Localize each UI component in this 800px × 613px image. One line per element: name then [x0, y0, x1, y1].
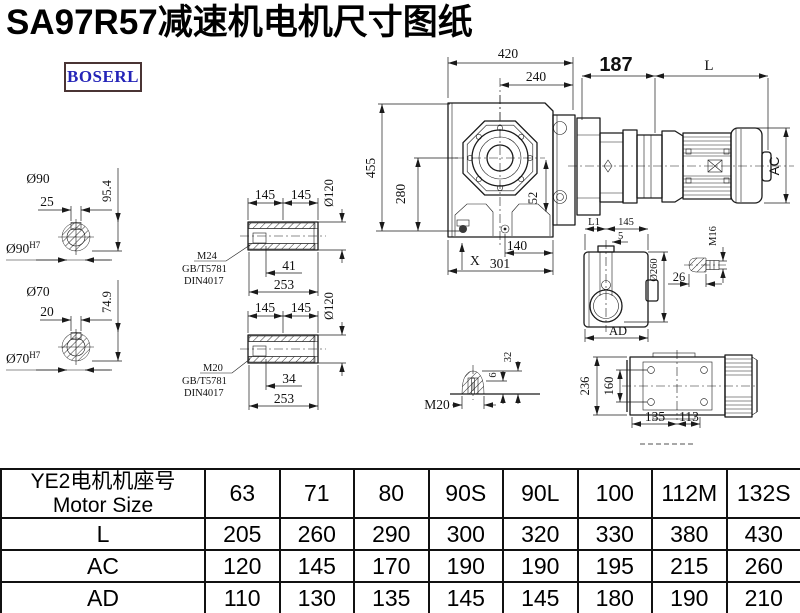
dim-145-c: 145 — [255, 300, 276, 315]
motor-end-cap — [731, 128, 762, 203]
dim-52: 52 — [526, 192, 540, 205]
dim-dia-260: Ø260 — [649, 258, 660, 281]
dim-187: 187 — [599, 54, 632, 76]
dim-34: 34 — [282, 371, 296, 386]
dim-455: 455 — [363, 158, 378, 179]
table-col-header: 90L — [503, 469, 578, 518]
table-cell: 120 — [205, 550, 280, 582]
label-m16: M16 — [708, 226, 719, 246]
table-cell: 195 — [578, 550, 653, 582]
dim-ad: AD — [609, 324, 627, 338]
dim-253-b: 253 — [274, 391, 295, 406]
table-cell: 260 — [727, 550, 800, 582]
page-title: SA97R57减速机电机尺寸图纸 — [6, 0, 473, 45]
adapter-disc — [623, 130, 637, 203]
table-col-header: 90S — [429, 469, 504, 518]
table-col-header: 80 — [354, 469, 429, 518]
dim-160: 160 — [602, 377, 616, 396]
plug-m16: M16 26 — [668, 226, 727, 287]
label-din-b: DIN4017 — [184, 388, 224, 399]
dim-145-a: 145 — [255, 187, 276, 202]
dim-280: 280 — [393, 184, 408, 205]
dim-dia-120-b: Ø120 — [322, 292, 336, 320]
dim-74-9: 74.9 — [100, 291, 114, 313]
dim-41: 41 — [282, 258, 296, 273]
plug-m20-view: M20 6 32 — [424, 352, 540, 412]
gearbox-side-view: L1 145 5 Ø260 AD — [584, 217, 668, 342]
coupling-neck — [600, 133, 623, 202]
dim-l: L — [704, 58, 713, 74]
table-cell: 135 — [354, 582, 429, 613]
table-cell: 190 — [429, 550, 504, 582]
label-m20: M20 — [203, 363, 223, 374]
table-cell: 430 — [727, 518, 800, 550]
sleeve-m20: 145 145 Ø120 M20 GB/T5781 DIN4017 34 253 — [182, 292, 346, 410]
label-gb-b: GB/T5781 — [182, 376, 227, 387]
table-header-en: Motor Size — [2, 494, 204, 518]
motor-assembly-view: 187 L AC — [568, 54, 794, 215]
dim-bore-70: Ø70H7 — [6, 350, 41, 366]
table-header-cn: YE2电机机座号 — [2, 470, 204, 494]
dim-113: 113 — [679, 409, 699, 424]
gearbox-front-view: 420 240 455 280 52 140 301 X — [363, 46, 575, 275]
table-cell: 190 — [652, 582, 727, 613]
dim-145-side: 145 — [618, 217, 634, 228]
dim-140: 140 — [507, 238, 528, 253]
table-col-header: 100 — [578, 469, 653, 518]
dim-145-b: 145 — [291, 187, 312, 202]
dim-bore-90: Ø90H7 — [6, 240, 41, 256]
dim-dia-120-a: Ø120 — [322, 179, 336, 207]
dim-135: 135 — [645, 409, 666, 424]
table-cell: 170 — [354, 550, 429, 582]
dim-6: 6 — [488, 372, 499, 377]
sleeve-m24: 145 145 Ø120 M24 GB/T5781 DIN4017 41 253 — [182, 179, 346, 296]
table-cell: 205 — [205, 518, 280, 550]
gearbox-top-view: 236 160 135 113 — [578, 350, 758, 444]
table-row: L 205 260 290 300 320 330 380 430 — [1, 518, 800, 550]
table-cell: 145 — [280, 550, 355, 582]
label-m20-plug: M20 — [424, 397, 450, 412]
dim-301: 301 — [490, 256, 510, 271]
dim-145-d: 145 — [291, 300, 312, 315]
table-cell: 320 — [503, 518, 578, 550]
row-label: AD — [1, 582, 205, 613]
table-cell: 180 — [578, 582, 653, 613]
table-cell: 290 — [354, 518, 429, 550]
row-label: AC — [1, 550, 205, 582]
mark-x: X — [470, 253, 480, 268]
table-cell: 145 — [503, 582, 578, 613]
label-m24: M24 — [197, 251, 218, 262]
dim-keyway-25: 25 — [40, 194, 54, 209]
input-flange-plate — [553, 115, 575, 225]
dim-dia-90: Ø90 — [26, 171, 49, 186]
oil-plug — [459, 225, 467, 233]
table-cell: 145 — [429, 582, 504, 613]
dim-5: 5 — [618, 231, 623, 242]
label-din-a: DIN4017 — [184, 276, 224, 287]
table-cell: 330 — [578, 518, 653, 550]
drawing-page: { "title": "SA97R57减速机电机尺寸图纸", "brand": … — [0, 0, 800, 613]
shaft-section-70: Ø70 20 74.9 Ø70H7 — [6, 280, 122, 370]
table-row: AD 110 130 135 145 145 180 190 210 — [1, 582, 800, 613]
table-col-header: 132S — [727, 469, 800, 518]
dim-dia-70: Ø70 — [26, 284, 49, 299]
table-cell: 380 — [652, 518, 727, 550]
shaft-section-90: Ø90 25 95.4 Ø90H7 — [6, 168, 122, 260]
table-header-cell: YE2电机机座号 Motor Size — [1, 469, 205, 518]
motor-flange-bell — [662, 131, 683, 202]
table-row: AC 120 145 170 190 190 195 215 260 — [1, 550, 800, 582]
table-cell: 110 — [205, 582, 280, 613]
table-cell: 300 — [429, 518, 504, 550]
table-col-header: 71 — [280, 469, 355, 518]
dim-240: 240 — [526, 69, 547, 84]
label-gb-a: GB/T5781 — [182, 264, 227, 275]
table-cell: 130 — [280, 582, 355, 613]
row-label: L — [1, 518, 205, 550]
input-housing — [577, 118, 600, 215]
motor-size-table: YE2电机机座号 Motor Size 63 71 80 90S 90L 100… — [0, 468, 800, 613]
table-cell: 260 — [280, 518, 355, 550]
dim-ac: AC — [767, 156, 782, 175]
dim-420: 420 — [498, 46, 519, 61]
table-col-header: 112M — [652, 469, 727, 518]
dim-253-a: 253 — [274, 277, 295, 292]
dim-236: 236 — [578, 377, 592, 396]
dim-95-4: 95.4 — [100, 179, 114, 202]
table-col-header: 63 — [205, 469, 280, 518]
adapter-spacer — [637, 135, 662, 198]
plug-m16-cap — [689, 258, 706, 272]
dim-keyway-20: 20 — [40, 304, 54, 319]
table-cell: 190 — [503, 550, 578, 582]
brand-logo: BOSERL — [64, 62, 142, 92]
dim-l1: L1 — [588, 217, 600, 228]
dim-26: 26 — [673, 270, 686, 284]
table-cell: 215 — [652, 550, 727, 582]
dim-32: 32 — [503, 352, 514, 363]
table-cell: 210 — [727, 582, 800, 613]
